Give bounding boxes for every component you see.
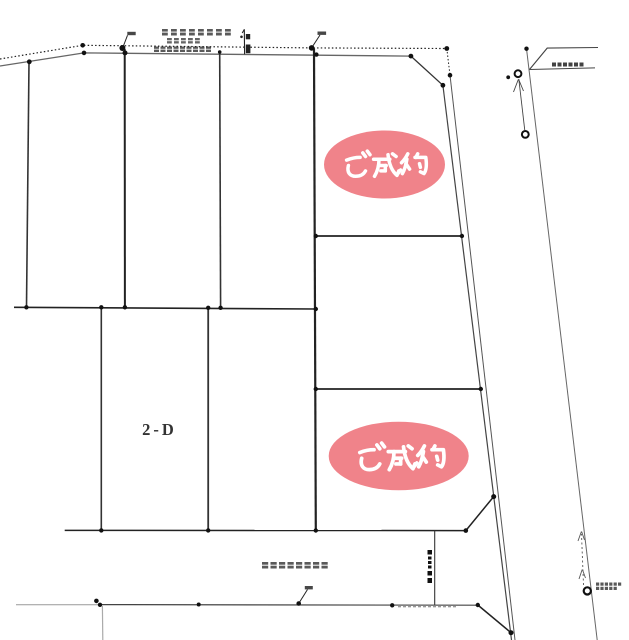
svg-text:2-D: 2-D [142,420,177,439]
